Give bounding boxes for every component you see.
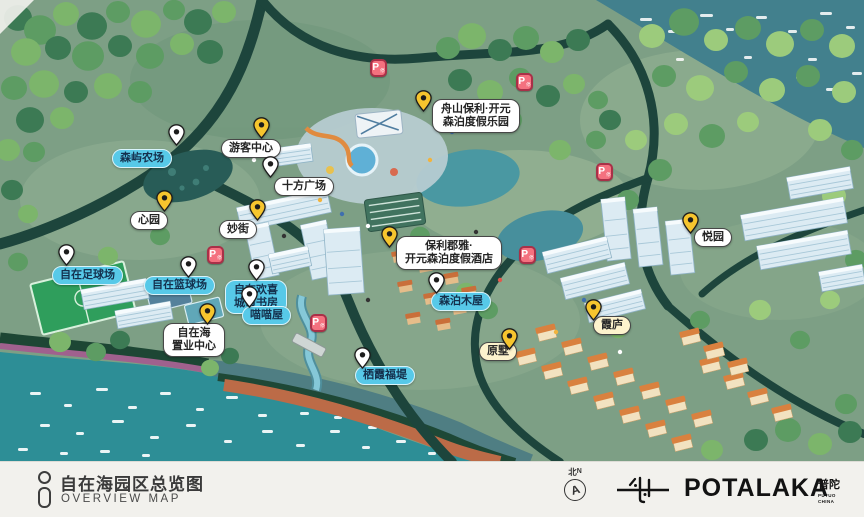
map-label-miao-street: 妙街: [219, 220, 257, 239]
location-pin-icon-senbo-cabins: [428, 272, 445, 294]
location-pin-icon-basketball-court: [180, 256, 197, 278]
parking-sub-glyph: 停: [380, 69, 385, 74]
location-pin-icon-senbo-resort-hotel: [381, 226, 398, 248]
compass: 北N A: [560, 466, 590, 501]
parking-sub-glyph: 停: [217, 256, 222, 261]
map-label-meow-house: 喵喵屋: [242, 306, 291, 325]
parking-glyph: P: [518, 77, 525, 87]
compass-dial-icon: A: [564, 479, 586, 501]
parking-glyph: P: [521, 250, 528, 260]
parking-sub-glyph: 停: [526, 83, 531, 88]
parking-icon: P停: [310, 314, 327, 332]
location-pin-icon-city-study: [248, 259, 265, 281]
brand-seal: 普陀 PUTUO CHINA: [818, 476, 840, 504]
location-pin-icon-senyu-farm: [168, 124, 185, 146]
brand-seal-cn: 普陀: [818, 476, 840, 492]
map-legend-icon: [37, 471, 51, 507]
parking-icon: P停: [207, 246, 224, 264]
map-label-football-field: 自在足球场: [52, 266, 123, 285]
parking-glyph: P: [312, 318, 319, 328]
map-annotations: 森屿农场游客中心十方广场心园妙街自在足球场自在篮球场自在欢喜 城市书房喵喵屋自在…: [0, 0, 864, 462]
parking-sub-glyph: 停: [320, 324, 325, 329]
map-label-senbo-cabins: 森泊木屋: [431, 292, 491, 311]
location-pin-icon-yue-garden: [682, 212, 699, 234]
location-pin-icon-shifang-plaza: [262, 156, 279, 178]
parking-icon: P停: [516, 73, 533, 91]
parking-sub-glyph: 停: [606, 173, 611, 178]
footer-bar: 自在海园区总览图 OVERVIEW MAP 北N A POTALAKA 普陀 P…: [0, 461, 864, 517]
page-subtitle: OVERVIEW MAP: [61, 493, 181, 505]
map-label-xin-garden: 心园: [130, 211, 168, 230]
parking-glyph: P: [372, 63, 379, 73]
map-label-basketball-court: 自在篮球场: [144, 276, 215, 295]
compass-north-label: 北: [568, 467, 577, 477]
parking-glyph: P: [598, 167, 605, 177]
location-pin-icon-qixia-dike: [354, 347, 371, 369]
location-pin-icon-senbo-resort-park: [415, 90, 432, 112]
parking-sub-glyph: 停: [529, 256, 534, 261]
location-pin-icon-meow-house: [241, 286, 258, 308]
location-pin-icon-yuan-villa: [501, 328, 518, 350]
map-label-yue-garden: 悦园: [694, 228, 732, 247]
location-pin-icon-sales-center: [199, 303, 216, 325]
parking-icon: P停: [596, 163, 613, 181]
location-pin-icon-xia-lodge: [585, 299, 602, 321]
map-label-shifang-plaza: 十方广场: [274, 177, 334, 196]
compass-n-label: N: [577, 468, 582, 475]
page-title: 自在海园区总览图: [60, 470, 204, 495]
map-label-sales-center: 自在海 置业中心: [163, 323, 225, 357]
parking-icon: P停: [519, 246, 536, 264]
location-pin-icon-xin-garden: [156, 190, 173, 212]
brand-seal-sub: PUTUO CHINA: [818, 493, 840, 504]
map-label-senyu-farm: 森屿农场: [112, 149, 172, 168]
location-pin-icon-miao-street: [249, 199, 266, 221]
parking-icon: P停: [370, 59, 387, 77]
brand-wordmark: POTALAKA: [684, 474, 829, 503]
map-label-senbo-resort-hotel: 保利郡雅· 开元森泊度假酒店: [396, 236, 502, 270]
location-pin-icon-visitor-center: [253, 117, 270, 139]
parking-glyph: P: [209, 250, 216, 260]
brand-mark-zhou-icon: [616, 476, 670, 504]
map-label-senbo-resort-park: 舟山保利·开元 森泊度假乐园: [432, 99, 520, 133]
overview-map-page: 森屿农场游客中心十方广场心园妙街自在足球场自在篮球场自在欢喜 城市书房喵喵屋自在…: [0, 0, 864, 517]
location-pin-icon-football-field: [58, 244, 75, 266]
